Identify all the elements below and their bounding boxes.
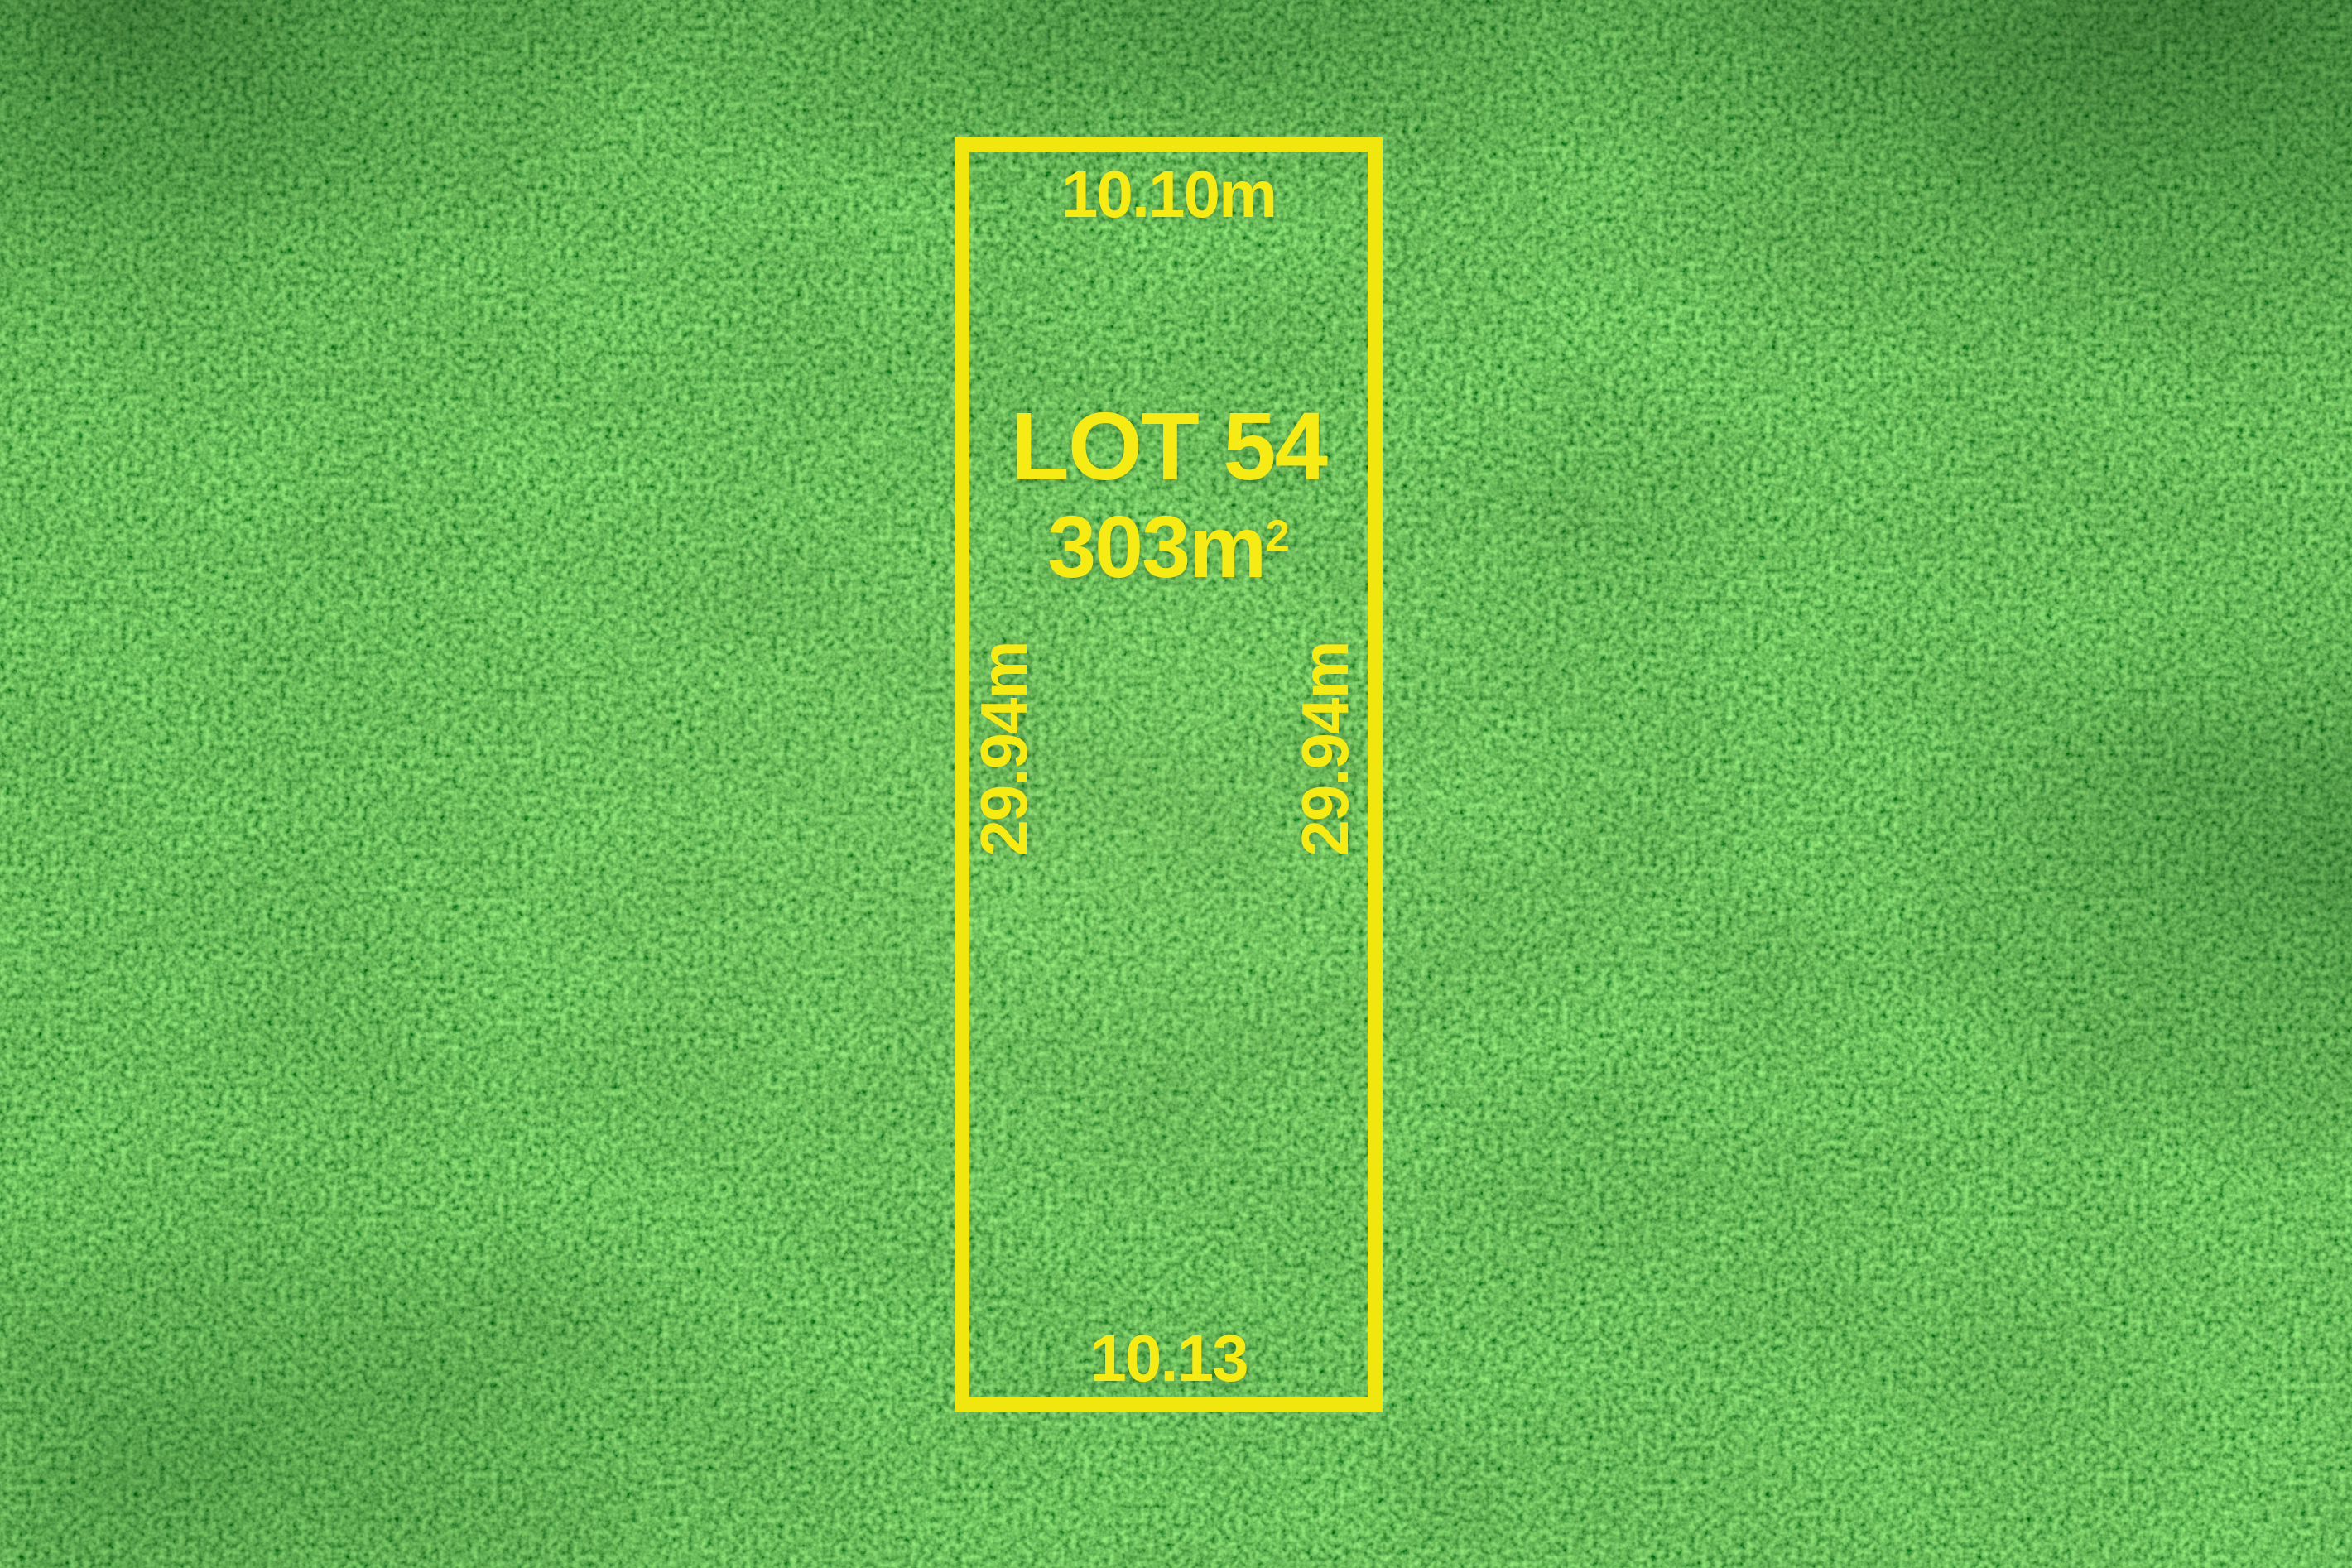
lot-area-value: 303m: [1047, 498, 1265, 596]
lot-advert-image: 10.10m LOT 54 303m2 29.94m 29.94m 10.13: [0, 0, 2352, 1568]
dimension-bottom: 10.13: [1089, 1325, 1247, 1392]
lot-area: 303m2: [1047, 503, 1290, 591]
dimension-left: 29.94m: [971, 642, 1037, 856]
dimension-right: 29.94m: [1292, 642, 1359, 856]
lot-area-superscript: 2: [1265, 512, 1289, 560]
lot-boundary: 10.10m LOT 54 303m2 29.94m 29.94m 10.13: [955, 137, 1383, 1412]
lot-title: LOT 54: [1011, 398, 1326, 494]
dimension-top: 10.10m: [1061, 161, 1276, 228]
